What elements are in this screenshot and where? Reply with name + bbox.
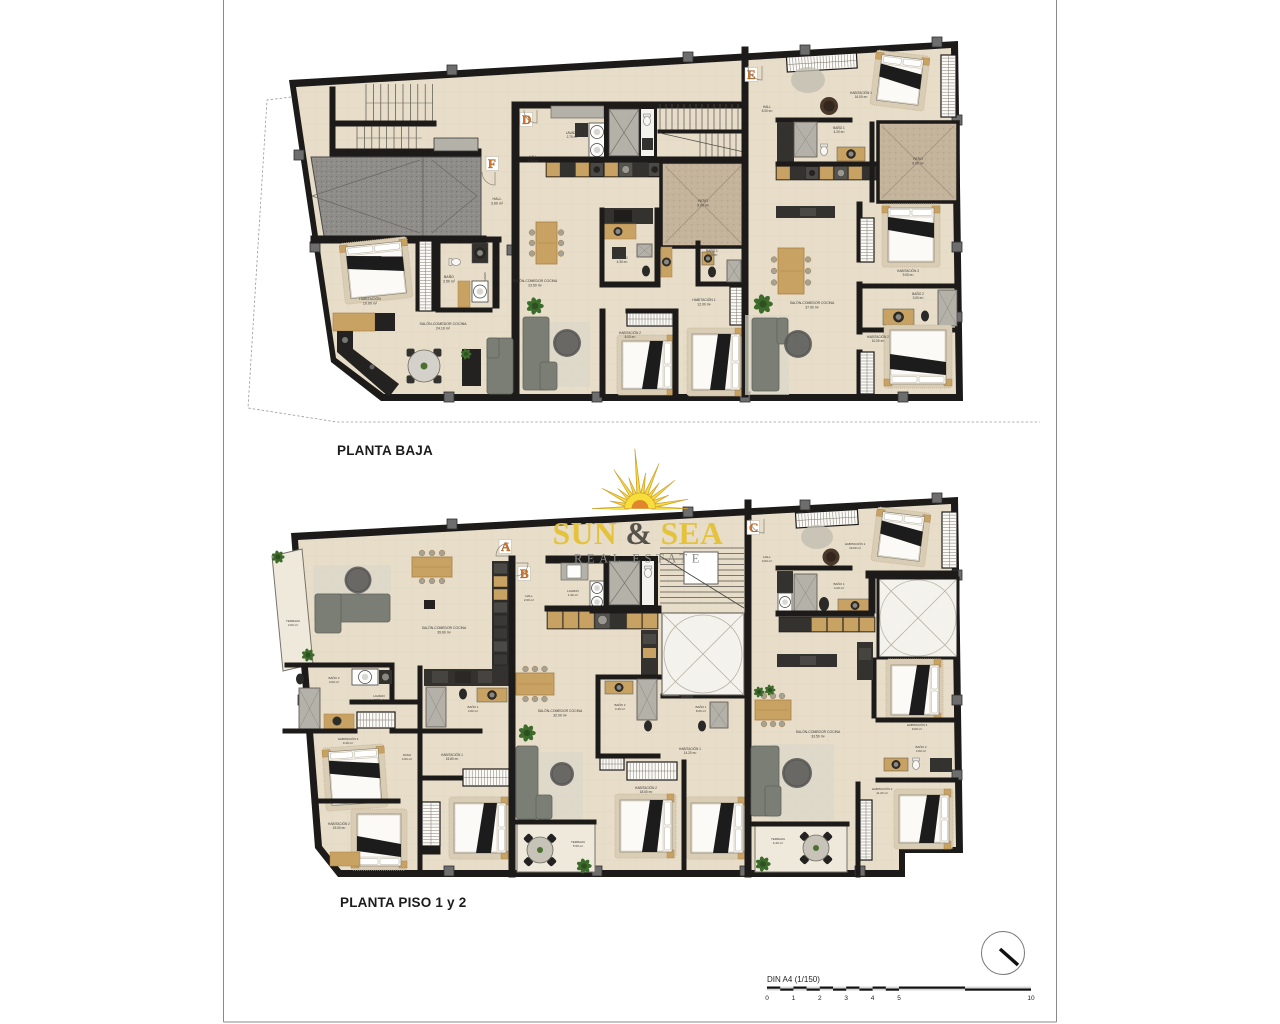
- svg-text:DIN A4 (1/150): DIN A4 (1/150): [767, 975, 820, 984]
- svg-text:1: 1: [792, 995, 796, 1002]
- svg-text:4.20 m²: 4.20 m²: [834, 586, 844, 590]
- svg-text:3: 3: [844, 995, 848, 1002]
- svg-text:6.40 m²: 6.40 m²: [773, 841, 783, 845]
- svg-text:23.50 m²: 23.50 m²: [528, 283, 542, 287]
- svg-text:4.00 m²: 4.00 m²: [402, 757, 412, 761]
- svg-text:2.08 m²: 2.08 m²: [528, 159, 539, 163]
- svg-text:0: 0: [765, 995, 769, 1002]
- svg-text:2: 2: [818, 995, 822, 1002]
- svg-text:8.00 m²: 8.00 m²: [707, 253, 718, 257]
- svg-text:3.60 m²: 3.60 m²: [491, 202, 504, 206]
- svg-text:5: 5: [897, 995, 901, 1002]
- svg-text:33.50 m²: 33.50 m²: [811, 734, 825, 738]
- svg-text:B: B: [520, 566, 529, 581]
- svg-text:4.30 m²: 4.30 m²: [617, 260, 628, 264]
- svg-text:8.00 m²: 8.00 m²: [696, 709, 706, 713]
- svg-text:1.90 m²: 1.90 m²: [568, 593, 578, 597]
- svg-text:3.00 m²: 3.00 m²: [913, 296, 924, 300]
- svg-text:SALÓN-COMEDOR COCINA: SALÓN-COMEDOR COCINA: [513, 278, 558, 283]
- svg-text:3.50 m²: 3.50 m²: [443, 280, 456, 284]
- svg-text:32.00 m²: 32.00 m²: [553, 713, 567, 717]
- svg-text:2.00 m²: 2.00 m²: [524, 598, 534, 602]
- svg-text:5.50 m²: 5.50 m²: [573, 844, 583, 848]
- svg-text:39.60 m²: 39.60 m²: [437, 630, 451, 634]
- svg-text:9.00 m²: 9.00 m²: [912, 161, 924, 165]
- svg-text:10.00 m²: 10.00 m²: [363, 302, 378, 306]
- svg-text:PLANTA BAJA: PLANTA BAJA: [337, 443, 433, 458]
- svg-text:10.00 m²: 10.00 m²: [872, 339, 885, 343]
- svg-text:3.60 m²: 3.60 m²: [916, 749, 926, 753]
- svg-text:SALÓN-COMEDOR COCINA: SALÓN-COMEDOR COCINA: [422, 625, 467, 630]
- svg-text:HALL: HALL: [493, 197, 502, 201]
- svg-text:SALÓN-COMEDOR COCINA: SALÓN-COMEDOR COCINA: [538, 708, 583, 713]
- svg-text:PATIO: PATIO: [913, 157, 923, 161]
- svg-text:16.00 m²: 16.00 m²: [849, 546, 861, 550]
- svg-text:9.00 m²: 9.00 m²: [912, 727, 922, 731]
- svg-text:0.00 m²: 0.00 m²: [762, 559, 772, 563]
- svg-text:9.00 m²: 9.00 m²: [697, 203, 709, 207]
- svg-text:8.00 m²: 8.00 m²: [625, 335, 636, 339]
- svg-text:D: D: [522, 112, 531, 127]
- svg-text:2.30 m²: 2.30 m²: [374, 698, 384, 702]
- svg-text:2.70 m²: 2.70 m²: [567, 135, 578, 139]
- svg-text:PLANTA PISO 1 y 2: PLANTA PISO 1 y 2: [340, 895, 466, 910]
- svg-text:4.00 m²: 4.00 m²: [329, 680, 339, 684]
- svg-text:PATIO: PATIO: [698, 199, 708, 203]
- svg-text:19.00 m²: 19.00 m²: [333, 826, 346, 830]
- svg-text:12.00 m²: 12.00 m²: [697, 302, 711, 306]
- svg-text:4.20 m²: 4.20 m²: [834, 130, 845, 134]
- svg-text:11.20 m²: 11.20 m²: [876, 791, 888, 795]
- svg-text:24.10 m²: 24.10 m²: [436, 327, 451, 331]
- svg-text:5.00 m²: 5.00 m²: [762, 109, 773, 113]
- svg-text:BAÑO: BAÑO: [444, 274, 454, 279]
- svg-text:16.00 m²: 16.00 m²: [855, 95, 868, 99]
- svg-text:15.80 m²: 15.80 m²: [446, 757, 459, 761]
- svg-text:F: F: [488, 156, 496, 171]
- svg-text:10: 10: [1027, 995, 1035, 1002]
- svg-text:9.40 m²: 9.40 m²: [343, 741, 353, 745]
- svg-text:SUN & SEA: SUN & SEA: [553, 516, 724, 551]
- svg-text:HABITACIÓN 1: HABITACIÓN 1: [692, 297, 715, 302]
- svg-text:4.00 m²: 4.00 m²: [288, 623, 298, 627]
- svg-text:SALÓN-COMEDOR COCINA: SALÓN-COMEDOR COCINA: [419, 321, 467, 326]
- svg-text:HABITACIÓN: HABITACIÓN: [359, 296, 381, 301]
- svg-text:SALÓN-COMEDOR COCINA: SALÓN-COMEDOR COCINA: [796, 729, 841, 734]
- svg-text:37.00 m²: 37.00 m²: [805, 305, 819, 309]
- svg-text:4: 4: [871, 995, 875, 1002]
- svg-text:18.60 m²: 18.60 m²: [640, 790, 653, 794]
- svg-text:SALÓN-COMEDOR COCINA: SALÓN-COMEDOR COCINA: [790, 300, 835, 305]
- svg-text:9.00 m²: 9.00 m²: [903, 273, 914, 277]
- svg-text:REAL ESTATE: REAL ESTATE: [574, 552, 704, 566]
- svg-text:14.20 m²: 14.20 m²: [684, 751, 697, 755]
- svg-text:4.30 m²: 4.30 m²: [615, 707, 625, 711]
- svg-text:A: A: [501, 539, 511, 554]
- svg-text:4.00 m²: 4.00 m²: [468, 709, 478, 713]
